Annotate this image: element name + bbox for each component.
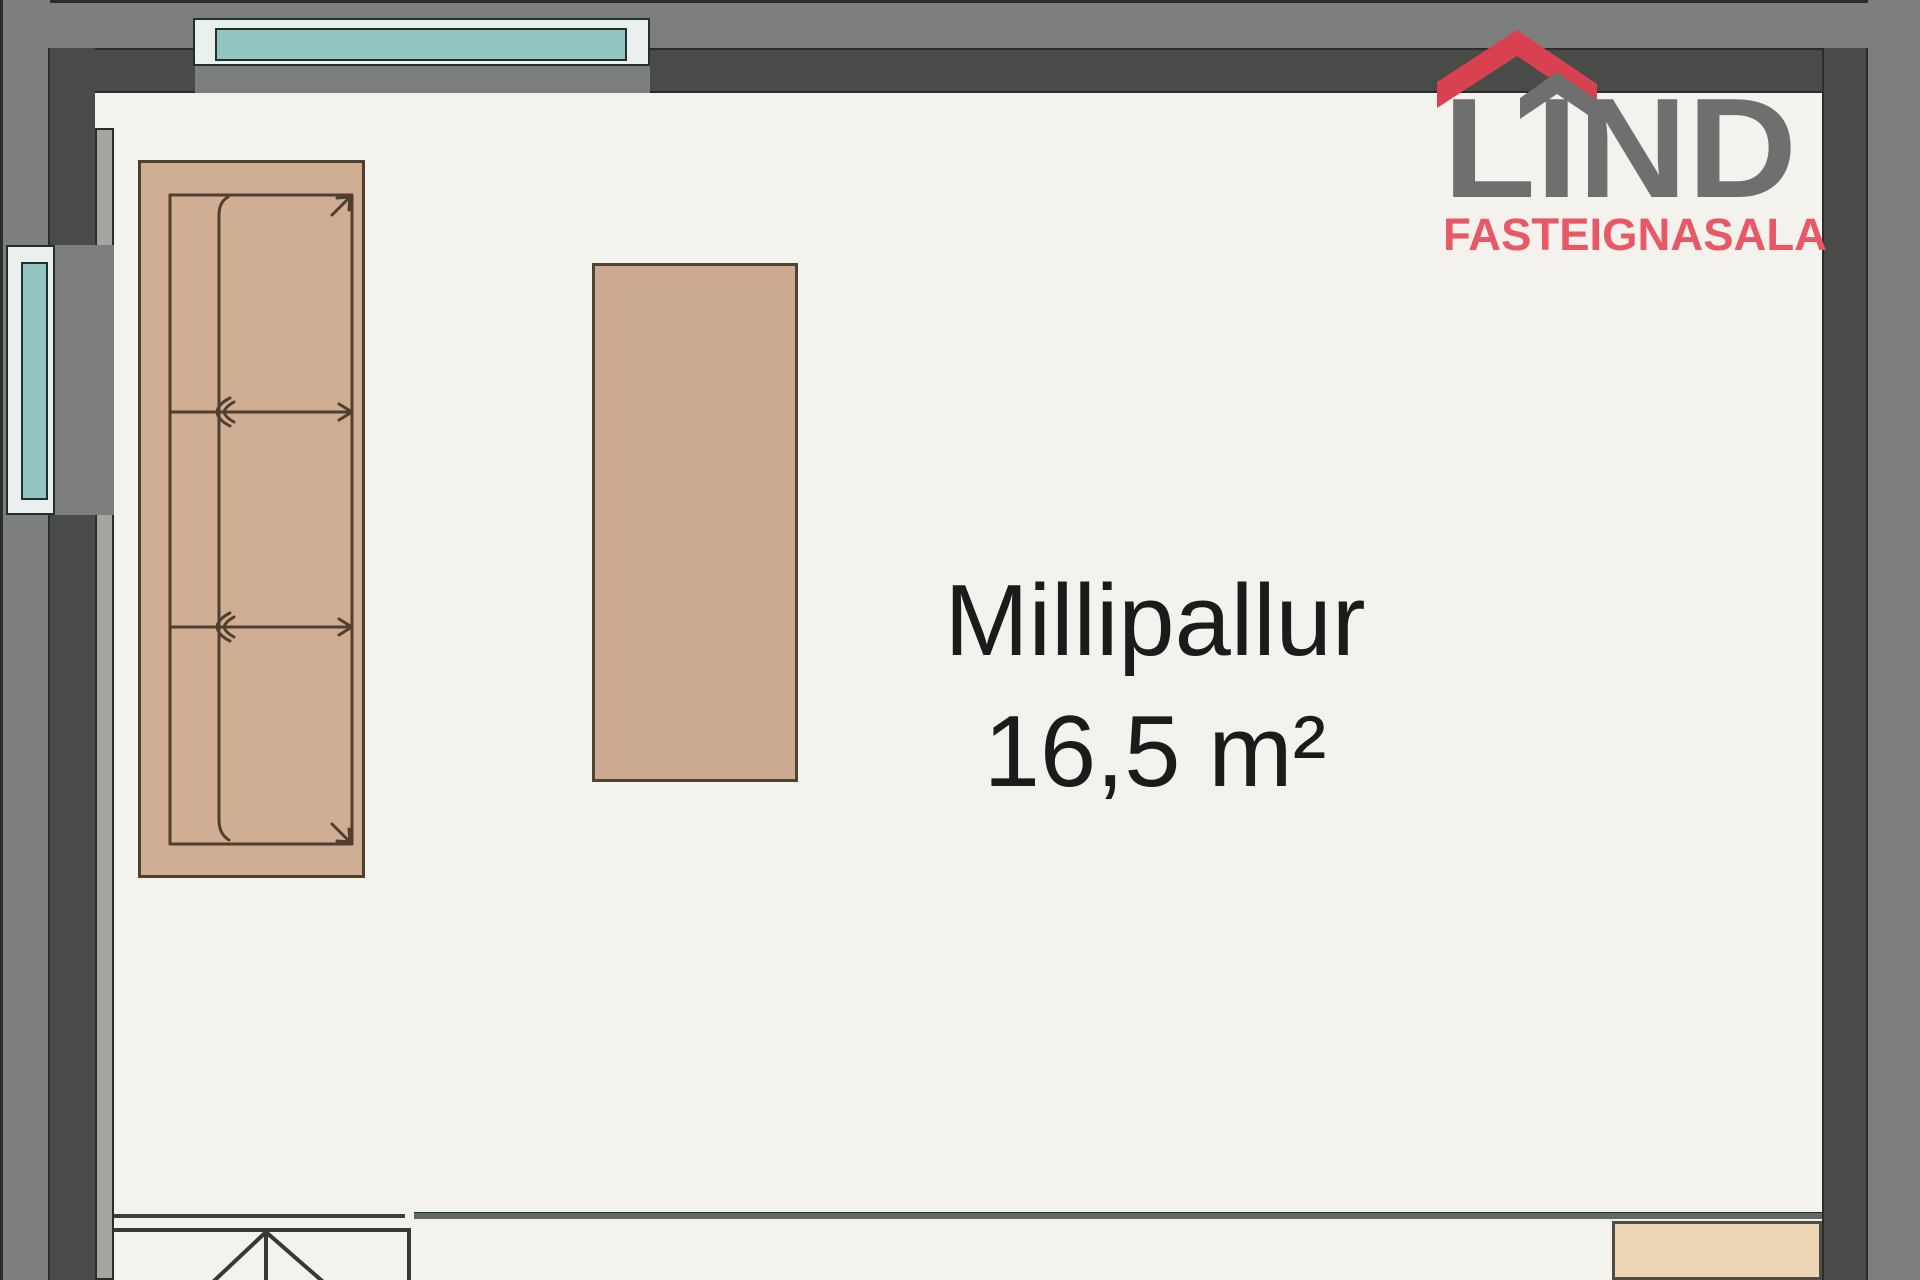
left-wall-face-strip-lower bbox=[95, 513, 114, 1280]
stair-enclosure-right bbox=[407, 1228, 411, 1280]
left-wall-face-strip-upper bbox=[95, 128, 114, 247]
mezzanine-railing bbox=[414, 1212, 1822, 1219]
logo-subtitle: FASTEIGNASALA bbox=[1443, 209, 1827, 260]
top-window bbox=[193, 18, 650, 66]
sofa-outline bbox=[140, 162, 364, 877]
floor-plan: Millipallur 16,5 m² LIND FASTEIGNASALA bbox=[0, 0, 1920, 1280]
top-window-wall-fill bbox=[195, 66, 650, 93]
stairs-arrow-lines bbox=[215, 1232, 321, 1280]
sofa bbox=[138, 160, 365, 878]
left-wall-inner bbox=[48, 48, 95, 1280]
mezzanine-edge-line bbox=[114, 1214, 405, 1218]
room-label: Millipallur 16,5 m² bbox=[800, 556, 1510, 818]
room-name: Millipallur bbox=[800, 556, 1510, 687]
left-window-glass bbox=[21, 262, 48, 500]
left-window bbox=[6, 245, 55, 515]
left-window-wall-fill bbox=[55, 245, 114, 515]
left-wall-outer bbox=[0, 0, 50, 1280]
logo-title: LIND bbox=[1443, 69, 1797, 228]
lind-logo: LIND FASTEIGNASALA bbox=[1420, 10, 1920, 270]
room-area: 16,5 m² bbox=[800, 687, 1510, 818]
cabinet bbox=[1612, 1221, 1822, 1280]
top-window-glass bbox=[215, 28, 627, 61]
coffee-table bbox=[592, 263, 798, 782]
stairs-direction-arrow bbox=[180, 1226, 350, 1280]
